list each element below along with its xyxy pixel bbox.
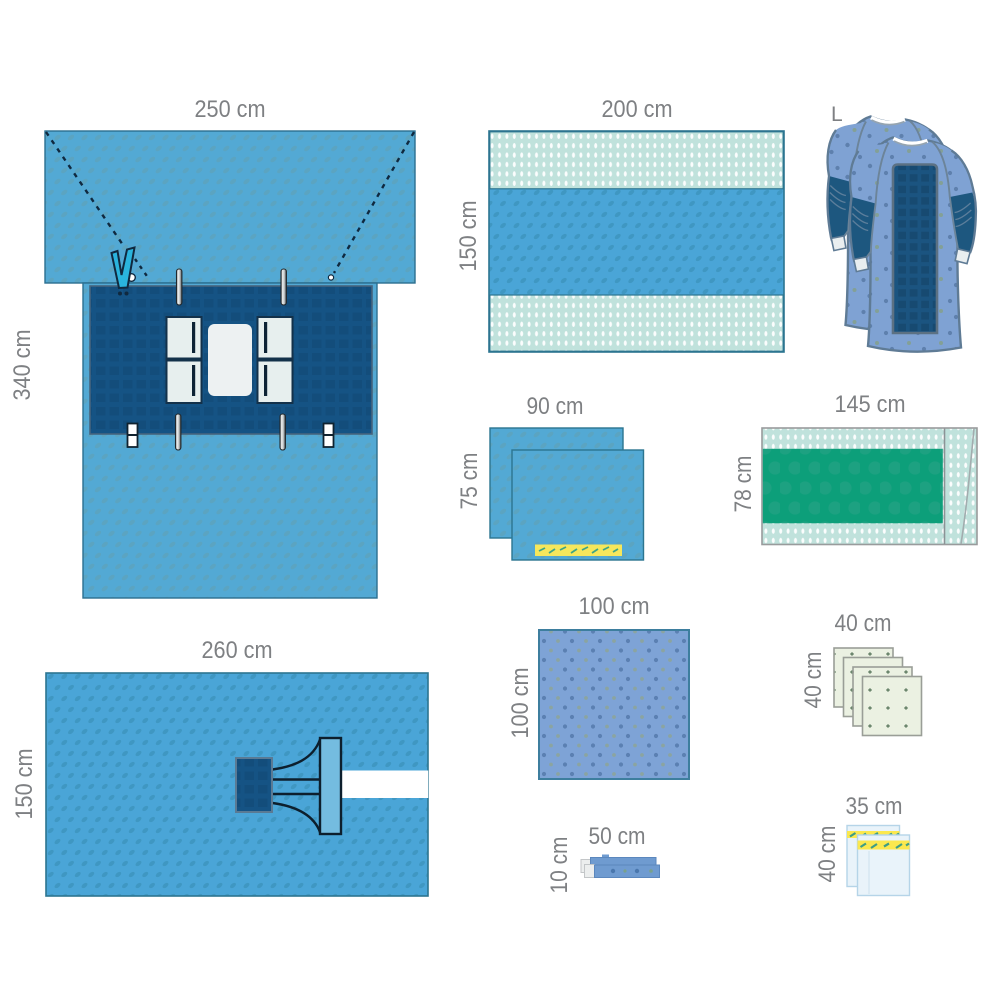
svg-text:90 cm: 90 cm [527, 393, 584, 420]
svg-text:340 cm: 340 cm [9, 330, 36, 401]
svg-text:40 cm: 40 cm [814, 826, 841, 883]
svg-text:10 cm: 10 cm [546, 837, 573, 894]
svg-text:100 cm: 100 cm [579, 593, 650, 620]
svg-text:100 cm: 100 cm [507, 668, 534, 739]
svg-text:75 cm: 75 cm [456, 453, 483, 510]
svg-text:40 cm: 40 cm [800, 652, 827, 709]
svg-text:250 cm: 250 cm [195, 96, 266, 123]
svg-text:260 cm: 260 cm [202, 637, 273, 664]
svg-text:145 cm: 145 cm [835, 391, 906, 418]
svg-text:150 cm: 150 cm [455, 201, 482, 272]
svg-text:150 cm: 150 cm [11, 749, 38, 820]
svg-text:200 cm: 200 cm [602, 96, 673, 123]
svg-text:L: L [831, 103, 843, 126]
svg-text:50 cm: 50 cm [589, 823, 646, 850]
svg-text:35 cm: 35 cm [846, 793, 903, 820]
svg-text:78 cm: 78 cm [730, 456, 757, 513]
svg-text:40 cm: 40 cm [835, 610, 892, 637]
